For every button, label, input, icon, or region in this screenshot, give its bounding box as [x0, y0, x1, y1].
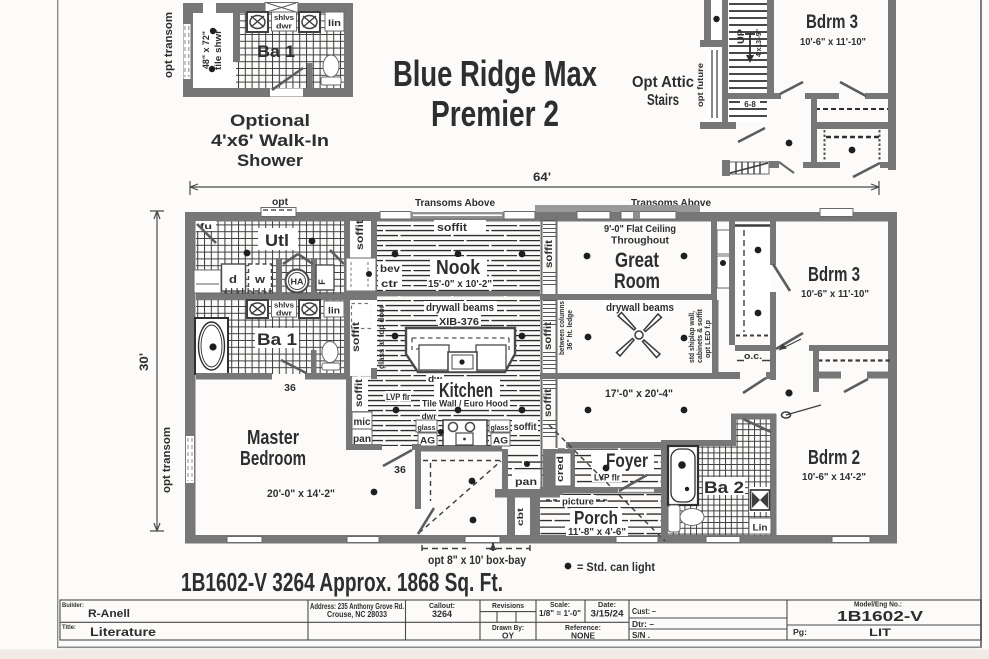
- svg-text:soffit: soffit: [355, 219, 366, 250]
- svg-text:drywall beams: drywall beams: [426, 302, 494, 314]
- svg-text:48" x 72": 48" x 72": [201, 31, 212, 69]
- svg-text:10'-6" x 11'-10": 10'-6" x 11'-10": [801, 288, 869, 300]
- svg-text:o.c.: o.c.: [744, 351, 762, 362]
- svg-text:= Std. can light: = Std. can light: [577, 560, 655, 574]
- svg-text:HA: HA: [291, 278, 304, 287]
- svg-text:soffit: soffit: [437, 222, 467, 234]
- svg-text:3/15/24: 3/15/24: [591, 609, 624, 619]
- svg-text:Pg:: Pg:: [793, 628, 807, 637]
- svg-text:soffit: soffit: [544, 239, 555, 268]
- svg-text:Bdrm 3: Bdrm 3: [806, 12, 858, 33]
- svg-text:Transoms Above: Transoms Above: [415, 198, 495, 209]
- svg-text:XIB-376: XIB-376: [439, 316, 479, 328]
- svg-text:AG: AG: [420, 436, 435, 446]
- svg-text:36: 36: [394, 464, 406, 476]
- svg-text:10'-6" x 14'-2": 10'-6" x 14'-2": [802, 471, 866, 483]
- svg-text:Literature: Literature: [90, 625, 156, 639]
- svg-text:UP: UP: [736, 28, 747, 44]
- svg-text:ctr: ctr: [381, 279, 398, 290]
- svg-text:pan: pan: [353, 434, 371, 445]
- svg-text:glass: glass: [418, 423, 436, 432]
- svg-text:Bedroom: Bedroom: [240, 448, 306, 470]
- svg-text:Opt Attic: Opt Attic: [632, 74, 694, 91]
- svg-text:d: d: [229, 274, 237, 286]
- svg-text:Ba 1: Ba 1: [257, 330, 297, 349]
- svg-text:tile shwr: tile shwr: [213, 30, 224, 70]
- svg-text:Title:: Title:: [62, 625, 76, 631]
- svg-text:lin: lin: [328, 18, 341, 29]
- svg-text:drywall beams: drywall beams: [606, 302, 674, 314]
- svg-text:15'-0" x 10'-2": 15'-0" x 10'-2": [428, 278, 492, 290]
- svg-text:F: F: [317, 279, 327, 285]
- svg-text:1B1602-V 3264 Approx. 1868 Sq: 1B1602-V 3264 Approx. 1868 Sq. Ft.: [181, 569, 503, 597]
- svg-text:Room: Room: [614, 270, 660, 293]
- svg-text:cred: cred: [555, 456, 566, 482]
- svg-text:opt: opt: [272, 196, 288, 208]
- svg-text:Throughout: Throughout: [611, 235, 669, 247]
- svg-text:64': 64': [533, 170, 551, 184]
- svg-text:Foyer: Foyer: [606, 451, 648, 472]
- svg-text:soffit: soffit: [514, 421, 537, 433]
- svg-text:Ba 1: Ba 1: [257, 42, 295, 61]
- svg-text:30': 30': [137, 353, 151, 371]
- svg-text:opt transom: opt transom: [163, 12, 175, 78]
- svg-text:glass at top door: glass at top door: [376, 304, 386, 369]
- svg-text:LIT: LIT: [869, 627, 891, 639]
- svg-text:OY: OY: [502, 632, 515, 641]
- svg-text:glass: glass: [491, 423, 509, 432]
- svg-text:opt LED f.p: opt LED f.p: [703, 320, 712, 358]
- svg-text:Lin: Lin: [753, 523, 768, 534]
- svg-text:S/N .: S/N .: [632, 631, 650, 640]
- svg-text:dwr: dwr: [276, 22, 292, 31]
- svg-text:opt 8" x 10' box-bay: opt 8" x 10' box-bay: [428, 555, 527, 567]
- svg-text:soffit: soffit: [543, 321, 554, 350]
- svg-text:pan: pan: [515, 476, 537, 488]
- svg-text:17'-0" x 20'-4": 17'-0" x 20'-4": [605, 388, 673, 400]
- svg-text:Dtr: –: Dtr: –: [632, 620, 655, 629]
- svg-text:dwr: dwr: [276, 309, 292, 318]
- svg-text:Ba 2: Ba 2: [704, 478, 744, 497]
- svg-text:Builder:: Builder:: [62, 603, 84, 609]
- svg-text:Utl: Utl: [265, 231, 289, 250]
- svg-text:4'x6' Walk-In: 4'x6' Walk-In: [211, 131, 329, 150]
- svg-text:Porch: Porch: [574, 508, 618, 528]
- svg-text:soffit: soffit: [354, 378, 365, 407]
- svg-text:Tile Wall / Euro Hood: Tile Wall / Euro Hood: [422, 399, 508, 410]
- svg-text:Shower: Shower: [237, 151, 303, 170]
- svg-text:20'-0" x 14'-2": 20'-0" x 14'-2": [267, 488, 335, 500]
- svg-text:9'-0" Flat Ceiling: 9'-0" Flat Ceiling: [604, 223, 676, 235]
- svg-text:picture: picture: [562, 497, 594, 508]
- svg-text:1B1602-V: 1B1602-V: [837, 608, 923, 625]
- svg-text:soffit: soffit: [543, 388, 554, 417]
- svg-text:36: 36: [284, 382, 296, 394]
- svg-text:LVP flr: LVP flr: [386, 392, 410, 402]
- svg-text:1/8" = 1'-0": 1/8" = 1'-0": [539, 608, 581, 618]
- svg-text:10'-6" x 11'-10": 10'-6" x 11'-10": [800, 37, 866, 48]
- svg-text:Cust: –: Cust: –: [632, 607, 656, 616]
- svg-text:R-Anell: R-Anell: [88, 608, 130, 620]
- svg-text:soffit: soffit: [351, 321, 362, 352]
- svg-text:6-8: 6-8: [744, 100, 756, 109]
- svg-text:Bdrm 2: Bdrm 2: [808, 447, 860, 469]
- svg-text:Premier 2: Premier 2: [431, 93, 559, 134]
- svg-text:Nook: Nook: [436, 257, 481, 279]
- svg-text:Crouse, NC 28033: Crouse, NC 28033: [327, 610, 387, 619]
- svg-text:cbt: cbt: [515, 508, 525, 526]
- svg-text:w: w: [254, 274, 266, 286]
- svg-text:3264: 3264: [432, 609, 452, 619]
- svg-text:AG: AG: [493, 436, 508, 446]
- svg-text:Great: Great: [615, 249, 659, 272]
- svg-text:4'x13'-9": 4'x13'-9": [756, 29, 763, 57]
- svg-text:bev: bev: [380, 264, 401, 275]
- svg-text:Revisions: Revisions: [492, 601, 524, 610]
- svg-text:lin: lin: [328, 306, 340, 317]
- svg-text:opt future: opt future: [695, 63, 705, 107]
- svg-text:mic: mic: [354, 417, 371, 428]
- svg-text:Optional: Optional: [230, 111, 310, 130]
- svg-text:Stairs: Stairs: [647, 92, 679, 109]
- svg-text:LVP flr: LVP flr: [594, 473, 620, 483]
- svg-text:opt transom: opt transom: [161, 427, 173, 493]
- svg-text:NONE: NONE: [571, 631, 595, 641]
- svg-text:36" ht. ledge: 36" ht. ledge: [565, 310, 574, 350]
- svg-text:Blue Ridge Max: Blue Ridge Max: [393, 53, 597, 94]
- svg-text:Bdrm 3: Bdrm 3: [808, 264, 860, 286]
- svg-text:Master: Master: [247, 427, 299, 449]
